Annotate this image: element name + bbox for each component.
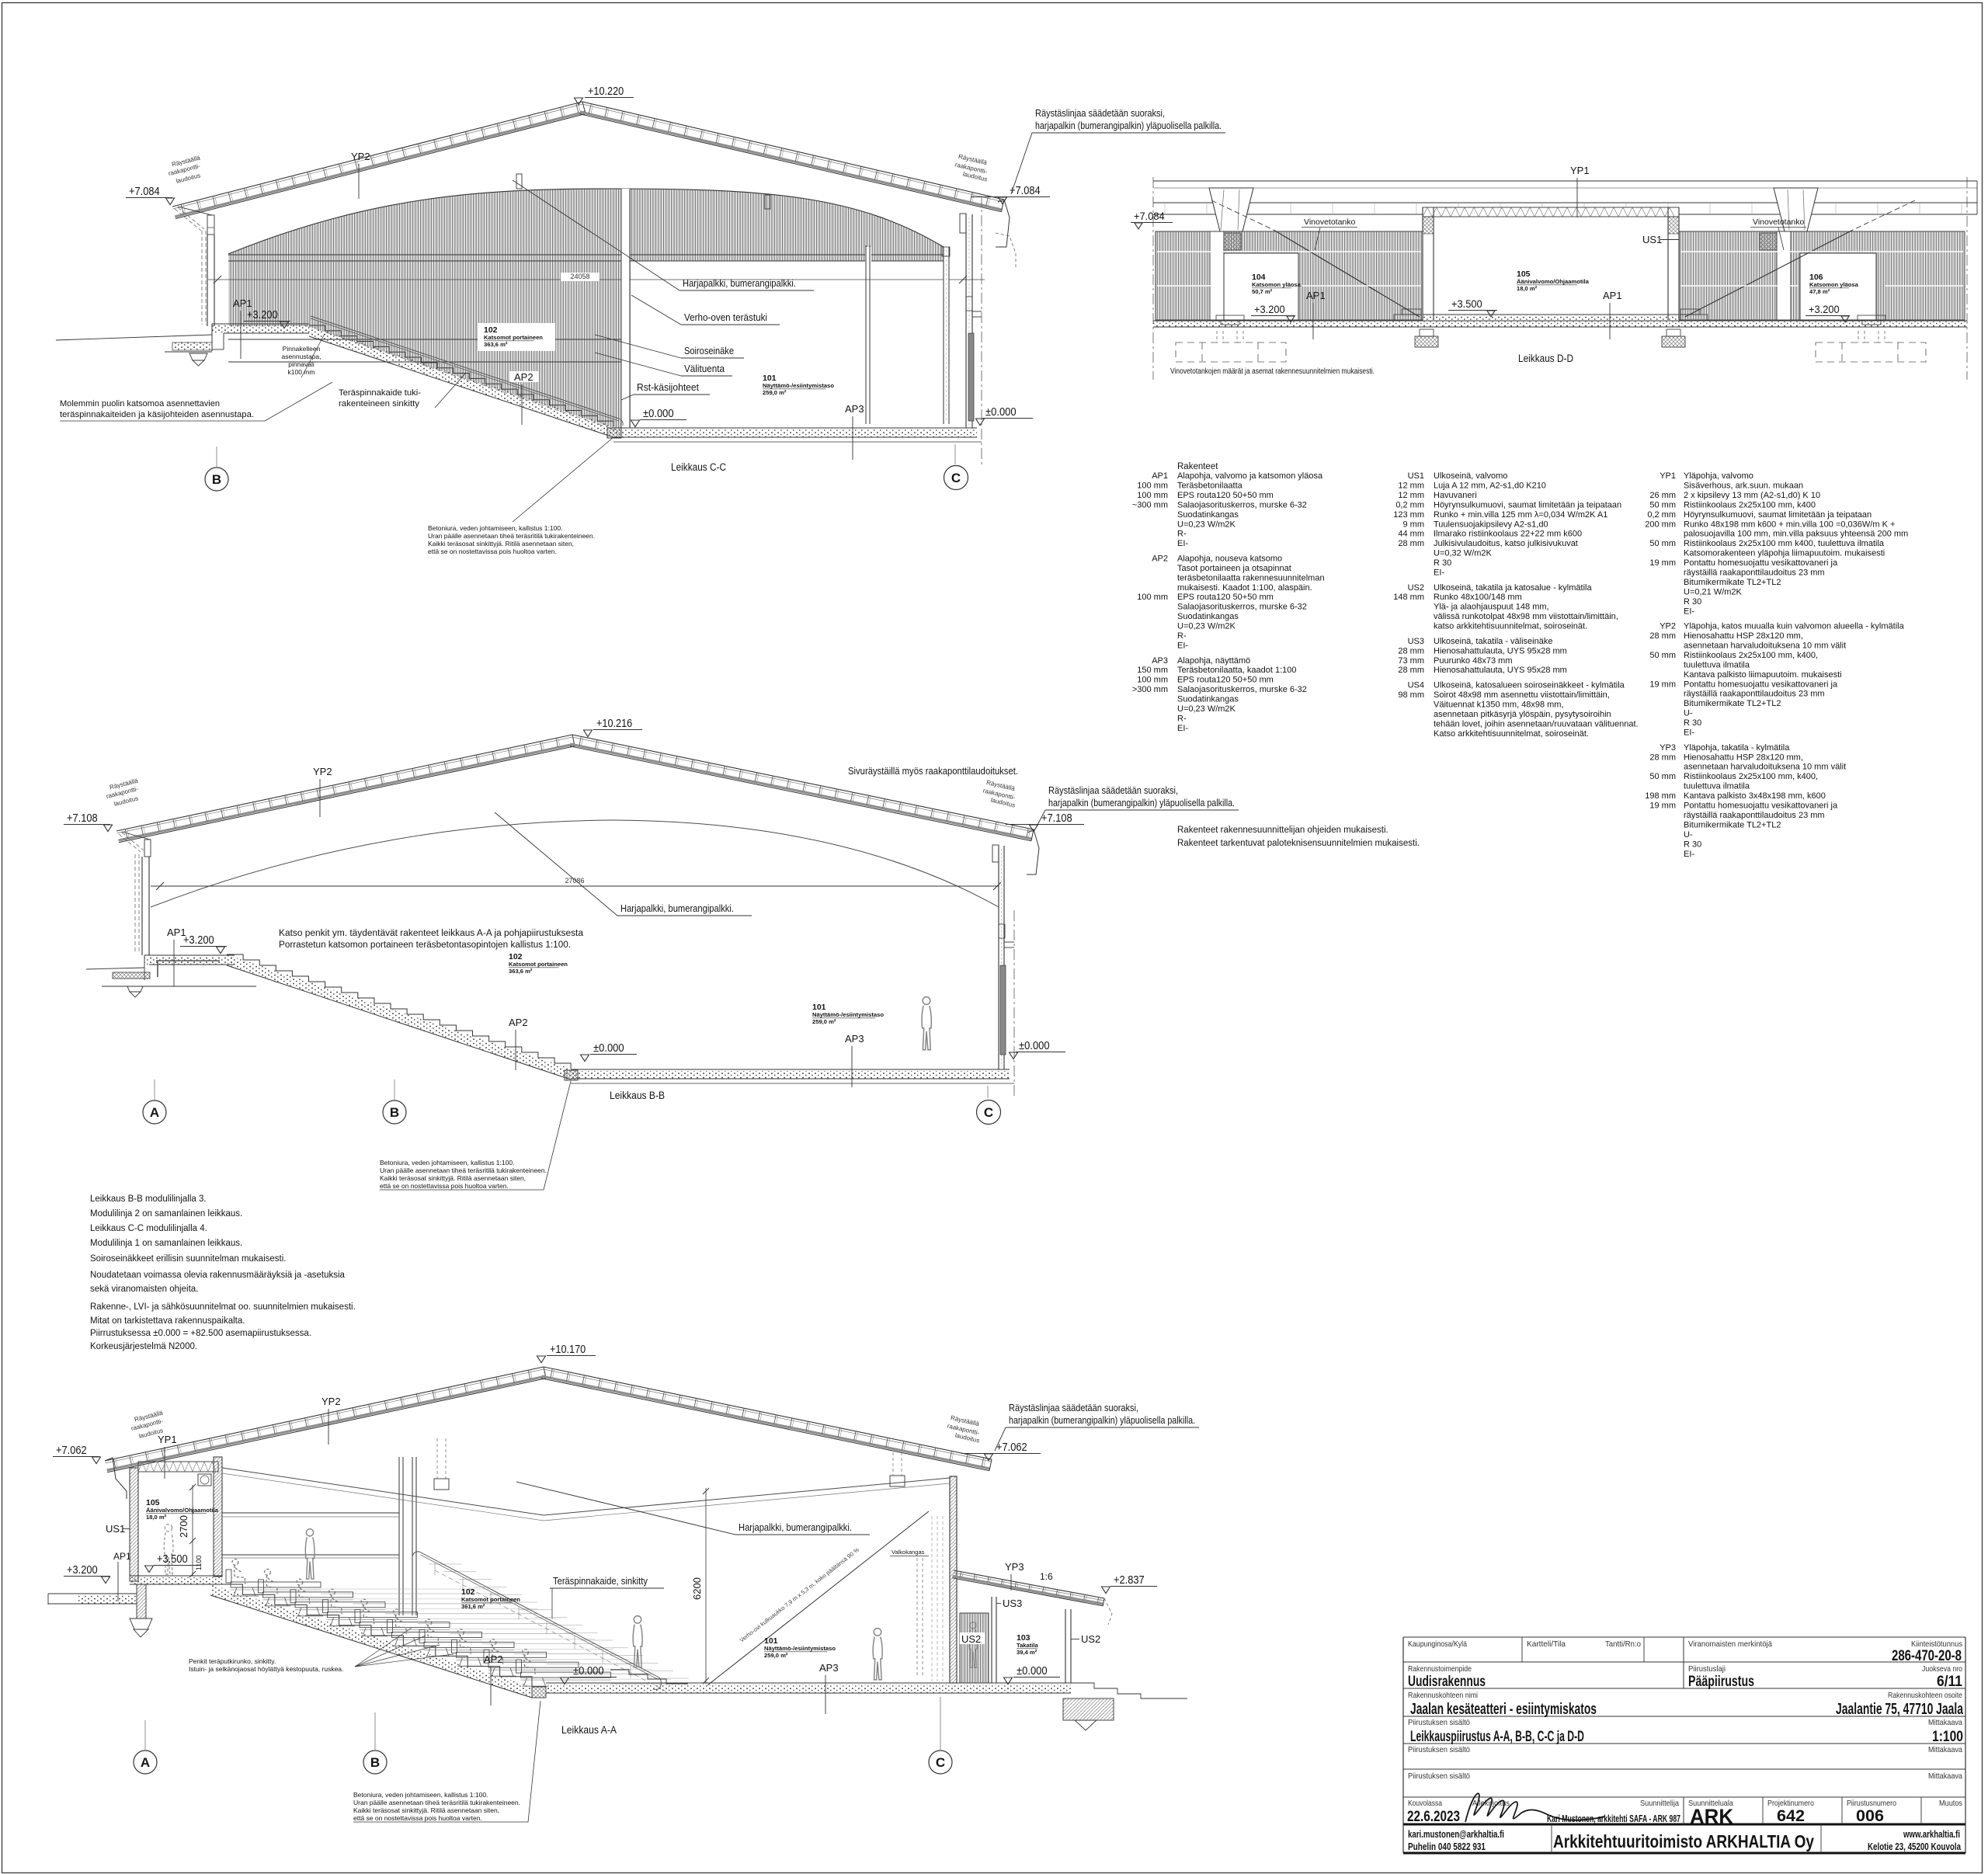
svg-text:Valkokangas: Valkokangas [891,1549,925,1556]
svg-text:Kantava palkisto liimapuutoim.: Kantava palkisto liimapuutoim. mukaisest… [1684,670,1842,680]
svg-text:0,2 mm: 0,2 mm [1647,510,1676,520]
svg-text:Höyrynsulkumuovi, saumat limit: Höyrynsulkumuovi, saumat limitetään ja t… [1434,500,1621,509]
svg-text:±0.000: ±0.000 [1019,1040,1050,1052]
svg-text:EPS routa120 50+50 mm: EPS routa120 50+50 mm [1177,593,1274,602]
svg-text:+3.200: +3.200 [1809,304,1840,315]
svg-text:US1: US1 [1408,471,1424,481]
svg-text:pinnaväli: pinnaväli [288,360,315,368]
svg-text:100 mm: 100 mm [1137,593,1168,602]
svg-text:että se on nostettavissa pois: että se on nostettavissa pois huoltoa va… [380,1182,509,1190]
svg-text:Räystäslinjaa säädetään suorak: Räystäslinjaa säädetään suoraksi, [1009,1402,1138,1413]
svg-text:AP3: AP3 [845,1033,864,1045]
svg-text:Katso arkkitehtisuunnitelmat,: Katso arkkitehtisuunnitelmat, soiroseinä… [1434,729,1589,739]
svg-text:U-: U- [1684,709,1693,718]
svg-text:Pontattu homesuojattu vesikatt: Pontattu homesuojattu vesikattovaneri ja [1684,558,1838,568]
svg-text:US2: US2 [1081,1633,1100,1645]
svg-text:EI-: EI- [1177,724,1188,733]
svg-text:12 mm: 12 mm [1398,491,1424,500]
svg-text:Runko 48x198 mm k600 + min.vil: Runko 48x198 mm k600 + min.villa 100 =0,… [1684,520,1895,529]
svg-text:U=0,23 W/m2K: U=0,23 W/m2K [1177,704,1236,714]
svg-text:U=0,21 W/m2K: U=0,21 W/m2K [1684,587,1743,596]
svg-text:Bitumikermikate TL2+TL2: Bitumikermikate TL2+TL2 [1684,578,1781,587]
svg-text:Vinovetotanko: Vinovetotanko [1753,217,1805,227]
svg-text:EI-: EI- [1434,568,1444,578]
svg-text:0,2 mm: 0,2 mm [1395,500,1424,509]
svg-text:50 mm: 50 mm [1649,772,1676,781]
svg-text:Teräspinnakaide tuki-: Teräspinnakaide tuki- [339,388,421,398]
svg-text:Kaikki teräsosat sinkittyjä. R: Kaikki teräsosat sinkittyjä. Ritilä asen… [380,1174,526,1182]
svg-text:että se on nostettavissa pois: että se on nostettavissa pois huoltoa va… [428,548,557,555]
svg-text:19 mm: 19 mm [1649,558,1676,568]
svg-text:Leikkaus C-C modulilinjalla 4.: Leikkaus C-C modulilinjalla 4. [90,1224,207,1233]
svg-text:Katso penkit ym. täydentävät r: Katso penkit ym. täydentävät rakenteet l… [279,929,584,938]
svg-text:+7.108: +7.108 [67,812,98,825]
svg-text:6200: 6200 [691,1577,703,1600]
svg-text:Suodatinkangas: Suodatinkangas [1177,695,1239,704]
svg-text:YP1: YP1 [1660,471,1676,481]
svg-text:Rakenne-, LVI- ja sähkösuunnit: Rakenne-, LVI- ja sähkösuunnitelmat oo. … [90,1302,356,1312]
svg-text:Sisäverhous, ark.suun. mukaan: Sisäverhous, ark.suun. mukaan [1684,482,1803,491]
svg-text:+7.062: +7.062 [996,1441,1027,1454]
svg-text:Piirustuksen sisältö: Piirustuksen sisältö [1408,1745,1470,1754]
svg-text:Runko 48x100/148 mm: Runko 48x100/148 mm [1434,593,1522,602]
svg-text:259,0 m²: 259,0 m² [764,1652,788,1659]
svg-text:tuulettuva ilmatila: tuulettuva ilmatila [1684,660,1750,669]
svg-text:harjapalkin (bumerangipalkin): harjapalkin (bumerangipalkin) yläpuolise… [1048,797,1235,808]
svg-text:73 mm: 73 mm [1398,656,1424,666]
svg-text:räystäillä raakaponttilaudoitu: räystäillä raakaponttilaudoitus 23 mm [1684,690,1825,699]
svg-text:Ylä- ja alaohjauspuut 148 mm,: Ylä- ja alaohjauspuut 148 mm, [1434,603,1549,612]
svg-text:Juokseva nro: Juokseva nro [1922,1664,1962,1674]
svg-text:+7.062: +7.062 [56,1445,87,1457]
svg-text:Muutos: Muutos [1939,1799,1962,1808]
svg-text:28 mm: 28 mm [1398,539,1424,548]
svg-text:AP1: AP1 [1152,471,1168,481]
svg-text:Ulkoseinä, valvomo: Ulkoseinä, valvomo [1434,471,1507,481]
svg-text:Penkit teräputkirunko, sinkitt: Penkit teräputkirunko, sinkitty. [189,1657,276,1665]
svg-text:Teräsbetonilaatta, kaadot 1:10: Teräsbetonilaatta, kaadot 1:100 [1177,666,1297,675]
svg-text:B: B [370,1755,380,1770]
svg-text:U=0,23 W/m2K: U=0,23 W/m2K [1177,622,1236,631]
svg-text:~300 mm: ~300 mm [1132,500,1168,509]
svg-text:YP2: YP2 [321,1396,341,1407]
svg-text:47,8 m²: 47,8 m² [1809,288,1830,295]
svg-text:US1: US1 [1642,234,1662,245]
svg-text:Julkisivulaudoitus, katso julk: Julkisivulaudoitus, katso julkisivukuvat [1434,539,1578,548]
svg-text:±0.000: ±0.000 [573,1665,604,1678]
svg-text:28 mm: 28 mm [1649,753,1676,762]
svg-text:Rakenteet rakennesuunnittelija: Rakenteet rakennesuunnittelijan ohjeiden… [1177,826,1388,835]
svg-text:98 mm: 98 mm [1398,690,1424,700]
svg-text:AP2: AP2 [484,1653,503,1665]
svg-text:361,6 m²: 361,6 m² [461,1603,485,1610]
svg-text:kari.mustonen@arkhaltia.fi: kari.mustonen@arkhaltia.fi [1408,1828,1504,1840]
svg-text:286-470-20-8: 286-470-20-8 [1892,1648,1962,1664]
svg-text:Näyttämö-/esiintymistaso: Näyttämö-/esiintymistaso [764,1645,836,1652]
svg-text:tehään lovet, joihin asennetaa: tehään lovet, joihin asennetaan/ruuvataa… [1434,719,1639,728]
svg-text:B: B [212,472,221,487]
svg-text:asennetaan pitkäsyrjä ylöspäin: asennetaan pitkäsyrjä ylöspäin, pysytyso… [1434,710,1611,719]
svg-text:Teräspinnakaide, sinkitty: Teräspinnakaide, sinkitty [553,1575,648,1587]
svg-text:Rakenteet tarkentuvat palotekn: Rakenteet tarkentuvat paloteknisensuunni… [1177,839,1420,848]
svg-text:EI-: EI- [1177,539,1188,548]
svg-text:+3.500: +3.500 [157,1553,188,1566]
svg-text:28 mm: 28 mm [1398,646,1424,655]
svg-text:A: A [150,1105,159,1120]
svg-text:9 mm: 9 mm [1403,520,1425,529]
svg-text:24058: 24058 [570,273,589,280]
svg-text:EPS routa120 50+50 mm: EPS routa120 50+50 mm [1177,676,1274,685]
svg-text:27086: 27086 [565,877,584,885]
svg-text:Rakenteet: Rakenteet [1177,462,1218,471]
svg-text:Kaikki teräsosat sinkittyjä. R: Kaikki teräsosat sinkittyjä. Ritilä asen… [353,1806,499,1814]
svg-text:Rakennuskohteen nimi: Rakennuskohteen nimi [1408,1691,1478,1700]
svg-text:Ristiinkoolaus 2x25x100 mm k40: Ristiinkoolaus 2x25x100 mm k400, tuulett… [1684,539,1885,548]
svg-text:A: A [141,1755,150,1770]
svg-text:±0.000: ±0.000 [593,1042,624,1055]
svg-text:Yläpohja, takatila - kylmätila: Yläpohja, takatila - kylmätila [1684,743,1790,753]
svg-text:Betoniura, veden johtamiseen,: Betoniura, veden johtamiseen, kallistus … [353,1791,488,1799]
svg-text:642: 642 [1777,1807,1805,1825]
svg-text:Vinovetotanko: Vinovetotanko [1304,217,1356,227]
svg-text:Havuvaneri: Havuvaneri [1434,491,1477,500]
svg-text:palosuojavilla 100 mm, min.vil: palosuojavilla 100 mm, min.villa paksuus… [1684,530,1908,539]
svg-text:R 30: R 30 [1684,597,1701,607]
svg-text:räystäillä raakaponttilaudoitu: räystäillä raakaponttilaudoitus 23 mm [1684,811,1825,820]
svg-text:Mitat on tarkistettava rakennu: Mitat on tarkistettava rakennuspaikalta. [90,1316,245,1326]
svg-text:Betoniura, veden johtamiseen,: Betoniura, veden johtamiseen, kallistus … [428,524,562,532]
svg-text:Kelotie 23, 45200 Kouvola: Kelotie 23, 45200 Kouvola [1868,1841,1962,1852]
svg-text:+10.220: +10.220 [588,85,624,98]
svg-text:Räystäslinjaa säädetään suorak: Räystäslinjaa säädetään suoraksi, [1048,784,1178,796]
svg-text:Takatila: Takatila [1017,1642,1038,1649]
svg-text:harjapalkin (bumerangipalkin): harjapalkin (bumerangipalkin) yläpuolise… [1035,120,1222,131]
svg-text:asennetaan harvaludoituksena 1: asennetaan harvaludoituksena 10 mm välit [1684,763,1846,772]
svg-text:Sivuräystäillä myös raakapontt: Sivuräystäillä myös raakaponttilaudoituk… [848,765,1018,777]
svg-text:Kouvolassa: Kouvolassa [1408,1799,1442,1808]
svg-text:Piirustuslaji: Piirustuslaji [1688,1664,1726,1674]
svg-text:R 30: R 30 [1684,718,1701,728]
svg-text:Suodatinkangas: Suodatinkangas [1177,612,1239,621]
svg-text:+10.170: +10.170 [550,1344,586,1356]
svg-text:Kaikki teräsosat sinkittyjä. R: Kaikki teräsosat sinkittyjä. Ritilä asen… [428,540,574,548]
svg-text:Harjapalkki, bumerangipalkki.: Harjapalkki, bumerangipalkki. [739,1521,852,1533]
svg-text:Korkeusjärjestelmä N2000.: Korkeusjärjestelmä N2000. [90,1342,197,1351]
svg-text:Uran päälle asennetaan tiheä t: Uran päälle asennetaan tiheä teräsritilä… [380,1166,547,1174]
svg-text:Salaojasorituskerros, murske 6: Salaojasorituskerros, murske 6-32 [1177,500,1307,509]
svg-text:AP1: AP1 [1306,290,1326,301]
svg-text:50,7 m²: 50,7 m² [1252,288,1273,295]
svg-text:Betoniura, veden johtamiseen,: Betoniura, veden johtamiseen, kallistus … [380,1159,514,1166]
svg-text:259,0 m²: 259,0 m² [812,1018,836,1025]
svg-text:Äänivalvomo/Ohjaamotila: Äänivalvomo/Ohjaamotila [146,1507,219,1514]
svg-text:+7.108: +7.108 [1041,812,1072,825]
svg-text:Katsomot portaineen: Katsomot portaineen [461,1596,520,1603]
svg-text:asennustapa,: asennustapa, [281,353,321,360]
svg-text:sekä viranomaisten ohjeita.: sekä viranomaisten ohjeita. [90,1285,198,1294]
svg-text:1100: 1100 [195,1556,203,1570]
svg-text:YP1: YP1 [1570,165,1590,176]
svg-text:Leikkaus B-B modulilinjalla 3.: Leikkaus B-B modulilinjalla 3. [90,1194,207,1204]
svg-text:harjapalkin (bumerangipalkin): harjapalkin (bumerangipalkin) yläpuolise… [1009,1414,1195,1426]
svg-text:±0.000: ±0.000 [985,406,1017,419]
svg-text:363,6 m²: 363,6 m² [484,341,508,348]
svg-text:Hienosahattulauta, UYS 95x28 m: Hienosahattulauta, UYS 95x28 mm [1434,646,1567,655]
svg-text:AP1: AP1 [233,297,252,309]
svg-text:+10.216: +10.216 [596,718,632,730]
svg-text:Höyrynsulkumuovi, saumat limit: Höyrynsulkumuovi, saumat limitetään ja t… [1684,510,1872,520]
svg-text:Tasot portaineen ja otsapinnat: Tasot portaineen ja otsapinnat [1177,564,1291,573]
svg-text:EPS routa120 50+50 mm: EPS routa120 50+50 mm [1177,491,1274,500]
svg-text:www.arkhaltia.fi: www.arkhaltia.fi [1903,1828,1960,1840]
svg-text:AP3: AP3 [819,1662,839,1674]
svg-text:+3.200: +3.200 [247,309,278,322]
svg-text:28 mm: 28 mm [1398,666,1424,675]
svg-text:100 mm: 100 mm [1137,676,1168,685]
svg-text:Porrastetun katsomon portainee: Porrastetun katsomon portaineen teräsbet… [279,940,571,950]
svg-text:k100 mm: k100 mm [288,368,315,376]
svg-text:2 x kipsilevy 13 mm (A2-s1,d0): 2 x kipsilevy 13 mm (A2-s1,d0) K 10 [1684,491,1820,500]
svg-text:Rst-käsijohteet: Rst-käsijohteet [637,381,699,393]
svg-text:Pontattu homesuojattu vesikatt: Pontattu homesuojattu vesikattovaneri ja [1684,801,1838,811]
svg-text:Katsomot portaineen: Katsomot portaineen [509,961,568,968]
svg-text:50 mm: 50 mm [1649,651,1676,660]
svg-text:US2: US2 [961,1633,981,1645]
svg-text:Hienosahattu HSP 28x120 mm,: Hienosahattu HSP 28x120 mm, [1684,631,1803,641]
svg-text:Modulilinja 2 on samanlainen l: Modulilinja 2 on samanlainen leikkaus. [90,1209,242,1219]
svg-text:R-: R- [1177,714,1187,724]
svg-text:Välituenta: Välituenta [684,363,725,374]
svg-text:Väituennat k1350 mm, 48x98 mm,: Väituennat k1350 mm, 48x98 mm, [1434,700,1564,709]
svg-text:+3.500: +3.500 [1451,298,1482,310]
svg-text:AP2: AP2 [509,1017,528,1028]
svg-text:Teräsbetonilaatta: Teräsbetonilaatta [1177,482,1243,491]
svg-text:Uran päälle asennetaan tiheä t: Uran päälle asennetaan tiheä teräsritilä… [353,1799,520,1806]
svg-text:2700: 2700 [178,1515,189,1538]
svg-text:Salaojasorituskerros, murske 6: Salaojasorituskerros, murske 6-32 [1177,603,1307,612]
svg-text:±0.000: ±0.000 [1017,1665,1048,1678]
svg-text:200 mm: 200 mm [1645,520,1676,529]
svg-text:C: C [936,1755,945,1770]
svg-text:Jaalan kesäteatteri - esiintym: Jaalan kesäteatteri - esiintymiskatos [1410,1701,1597,1718]
svg-text:Ristiinkoolaus 2x25x100 mm, k4: Ristiinkoolaus 2x25x100 mm, k400, [1684,651,1818,660]
svg-text:Leikkaus C-C: Leikkaus C-C [671,461,726,473]
svg-text:Verho-oven terästuki: Verho-oven terästuki [684,311,767,323]
svg-text:Alapohja, nouseva katsomo: Alapohja, nouseva katsomo [1177,554,1282,563]
svg-text:YP1: YP1 [158,1434,177,1445]
svg-text:U=0,23 W/m2K: U=0,23 W/m2K [1177,520,1236,529]
svg-text:50 mm: 50 mm [1649,539,1676,548]
svg-text:±0.000: ±0.000 [643,408,674,420]
svg-text:EI-: EI- [1177,641,1188,651]
svg-text:Mittakaava: Mittakaava [1928,1718,1962,1727]
svg-text:Viranomaisten merkintöjä: Viranomaisten merkintöjä [1688,1639,1772,1649]
svg-text:Mittakaava: Mittakaava [1928,1745,1962,1754]
svg-text:Leikkauspiirustus A-A, B-B, C-: Leikkauspiirustus A-A, B-B, C-C ja D-D [1410,1729,1584,1745]
svg-text:Suodatinkangas: Suodatinkangas [1177,510,1239,520]
svg-text:US3: US3 [1003,1598,1022,1609]
svg-text:50 mm: 50 mm [1649,500,1676,509]
svg-text:Katsomon yläosa: Katsomon yläosa [1809,281,1859,288]
svg-text:Rakennustoimenpide: Rakennustoimenpide [1408,1664,1472,1674]
svg-text:Yläpohja, valvomo: Yläpohja, valvomo [1684,471,1753,481]
svg-text:Yläpohja, katos muualla kuin v: Yläpohja, katos muualla kuin valvomon al… [1684,622,1905,631]
svg-text:Räystäslinjaa säädetään suorak: Räystäslinjaa säädetään suoraksi, [1035,107,1165,119]
svg-text:räystäillä raakaponttilaudoitu: räystäillä raakaponttilaudoitus 23 mm [1684,568,1825,578]
svg-text:19 mm: 19 mm [1649,680,1676,689]
svg-text:EI-: EI- [1684,850,1694,859]
svg-text:44 mm: 44 mm [1398,530,1424,539]
svg-text:Tantti/Rn:o: Tantti/Rn:o [1605,1639,1641,1649]
svg-text:YP2: YP2 [313,766,332,777]
svg-text:välissä runkotolpat 48x98 mm v: välissä runkotolpat 48x98 mm viistottain… [1434,612,1618,621]
svg-text:Mittakaava: Mittakaava [1928,1771,1962,1781]
svg-text:Arkkitehtuuritoimisto ARKHALTI: Arkkitehtuuritoimisto ARKHALTIA Oy [1553,1831,1814,1851]
svg-text:Harjapalkki, bumerangipalkki.: Harjapalkki, bumerangipalkki. [620,902,734,914]
svg-text:Rakennuskohteen osoite: Rakennuskohteen osoite [1888,1691,1962,1700]
svg-text:Piirustuksen sisältö: Piirustuksen sisältö [1408,1718,1470,1727]
svg-text:Luja A 12 mm, A2-s1,d0 K210: Luja A 12 mm, A2-s1,d0 K210 [1434,482,1546,491]
svg-text:Ulkoseinä, takatila - välisein: Ulkoseinä, takatila - väliseinäke [1434,637,1552,646]
svg-text:1:100: 1:100 [1932,1729,1963,1745]
svg-text:Tuulensuojakipsilevy A2-s1,d0: Tuulensuojakipsilevy A2-s1,d0 [1434,520,1548,529]
svg-text:Modulilinja 1 on samanlainen l: Modulilinja 1 on samanlainen leikkaus. [90,1239,242,1248]
svg-text:363,6 m²: 363,6 m² [509,968,533,975]
svg-text:Kartteli/Tila: Kartteli/Tila [1527,1639,1566,1649]
svg-text:YP3: YP3 [1005,1561,1024,1573]
svg-text:Hienosahattulauta, UYS 95x28 m: Hienosahattulauta, UYS 95x28 mm [1434,666,1567,675]
svg-text:US3: US3 [1408,637,1424,646]
svg-text:U-: U- [1684,830,1693,840]
svg-text:teräsbetonilaatta rakennesuunn: teräsbetonilaatta rakennesuunnitelman [1177,573,1325,582]
svg-text:Noudatetaan voimassa olevia ra: Noudatetaan voimassa olevia rakennusmäär… [90,1271,346,1280]
svg-text:US4: US4 [1408,681,1424,690]
svg-text:AP3: AP3 [845,403,864,415]
svg-text:Harjapalkki, bumerangipalkki.: Harjapalkki, bumerangipalkki. [683,277,796,289]
svg-text:100 mm: 100 mm [1137,491,1168,500]
svg-text:+7.084: +7.084 [1010,185,1041,197]
svg-text:+3.200: +3.200 [67,1564,98,1577]
svg-text:Pinnakelleen: Pinnakelleen [283,345,321,353]
svg-text:+3.200: +3.200 [183,934,214,947]
svg-text:Ristiinkoolaus 2x25x100 mm, k4: Ristiinkoolaus 2x25x100 mm, k400, [1684,772,1818,781]
svg-text:26 mm: 26 mm [1649,491,1676,500]
svg-text:teräspinnakaiteiden ja käsijoh: teräspinnakaiteiden ja käsijohteiden ase… [60,410,254,419]
svg-text:US2: US2 [1408,583,1424,593]
svg-text:Alapohja, valvomo ja katsomon: Alapohja, valvomo ja katsomon yläosa [1177,471,1323,481]
svg-text:Uran päälle asennetaan tiheä t: Uran päälle asennetaan tiheä teräsritilä… [428,532,595,540]
svg-text:Suunnittelija: Suunnittelija [1640,1799,1679,1808]
svg-text:katso arkkitehtisuunnitelmat,: katso arkkitehtisuunnitelmat, soiroseinä… [1434,622,1587,631]
svg-text:198 mm: 198 mm [1645,791,1676,801]
svg-text:12 mm: 12 mm [1398,482,1424,491]
svg-text:Salaojasorituskerros, murske 6: Salaojasorituskerros, murske 6-32 [1177,685,1307,694]
svg-text:YP2: YP2 [1660,622,1676,631]
svg-text:U=0,32 W/m2K: U=0,32 W/m2K [1434,549,1493,558]
svg-text:Uudisrakennus: Uudisrakennus [1408,1674,1486,1690]
svg-text:YP2: YP2 [351,151,370,162]
svg-text:C: C [951,471,961,485]
svg-text:Leikkaus B-B: Leikkaus B-B [610,1090,665,1101]
svg-text:22.6.2023: 22.6.2023 [1407,1809,1460,1825]
svg-text:Bitumikermikate TL2+TL2: Bitumikermikate TL2+TL2 [1684,699,1781,708]
svg-text:Piirrustuksessa ±0.000 = +82.5: Piirrustuksessa ±0.000 = +82.500 asemapi… [90,1329,311,1338]
svg-text:C: C [984,1105,993,1120]
svg-text:Näyttämö-/esiintymistaso: Näyttämö-/esiintymistaso [812,1011,884,1018]
svg-text:100 mm: 100 mm [1137,482,1168,491]
svg-text:YP3: YP3 [1660,743,1676,753]
svg-text:+3.200: +3.200 [1254,304,1285,315]
svg-text:Puhelin 040 5822 931: Puhelin 040 5822 931 [1408,1841,1486,1852]
svg-text:Piirustuksen sisältö: Piirustuksen sisältö [1408,1771,1470,1781]
svg-text:R 30: R 30 [1684,840,1701,849]
svg-text:R-: R- [1177,530,1187,539]
svg-text:Leikkaus A-A: Leikkaus A-A [561,1724,617,1736]
svg-text:Äänivalvomo/Ohjaamotila: Äänivalvomo/Ohjaamotila [1517,278,1590,285]
svg-text:rakenteineen sinkitty: rakenteineen sinkitty [339,399,420,409]
svg-text:Pääpiirustus: Pääpiirustus [1688,1674,1754,1690]
svg-text:19 mm: 19 mm [1649,801,1676,811]
svg-text:148 mm: 148 mm [1393,593,1424,602]
svg-text:Istuin- ja selkänojaosat höylä: Istuin- ja selkänojaosat höylättyä kesto… [189,1665,343,1673]
svg-text:ARK: ARK [1690,1805,1733,1828]
svg-text:B: B [390,1105,399,1120]
svg-text:Ristiinkoolaus 2x25x100 mm, k4: Ristiinkoolaus 2x25x100 mm, k400 [1684,500,1816,509]
svg-text:AP1: AP1 [113,1551,131,1562]
svg-text:Näyttämö-/esiintymistaso: Näyttämö-/esiintymistaso [763,382,834,389]
svg-text:28 mm: 28 mm [1649,631,1676,641]
svg-text:AP2: AP2 [514,371,533,383]
svg-text:39,4 m²: 39,4 m² [1017,1649,1037,1656]
svg-text:+7.084: +7.084 [1134,210,1165,222]
svg-text:EI-: EI- [1684,607,1694,616]
svg-text:Molemmin puolin katsomoa asenn: Molemmin puolin katsomoa asennettavien [60,399,220,409]
svg-text:AP2: AP2 [1152,554,1168,563]
svg-text:Ulkoseinä, takatila ja katosal: Ulkoseinä, takatila ja katosalue - kylmä… [1434,583,1592,593]
svg-text:R-: R- [1177,631,1187,641]
svg-text:18,0 m²: 18,0 m² [1517,285,1538,292]
svg-text:Bitumikermikate TL2+TL2: Bitumikermikate TL2+TL2 [1684,820,1781,829]
svg-text:Soirot 48x98 mm asennettu viis: Soirot 48x98 mm asennettu viistottain/li… [1434,690,1610,700]
svg-text:>300 mm: >300 mm [1132,685,1168,694]
svg-text:+2.837: +2.837 [1114,1574,1145,1587]
svg-text:Leikkaus D-D: Leikkaus D-D [1518,353,1573,364]
svg-text:AP1: AP1 [1603,290,1622,301]
svg-text:+7.084: +7.084 [129,186,160,198]
svg-text:150 mm: 150 mm [1137,666,1168,675]
svg-text:006: 006 [1856,1807,1884,1825]
svg-text:259,0 m²: 259,0 m² [763,389,787,396]
svg-text:Kaupunginosa/Kylä: Kaupunginosa/Kylä [1408,1639,1467,1649]
svg-text:Katsomorakenteen yläpohja liim: Katsomorakenteen yläpohja liimapuutoim. … [1684,549,1885,558]
svg-text:Soiroseinäke: Soiroseinäke [684,345,734,356]
svg-text:että se on nostettavissa pois: että se on nostettavissa pois huoltoa va… [353,1814,482,1822]
svg-text:Katsomot portaineen: Katsomot portaineen [484,334,543,341]
svg-text:R 30: R 30 [1434,558,1451,568]
svg-text:AP3: AP3 [1152,656,1168,666]
svg-text:asennetaan harvaludoituksena 1: asennetaan harvaludoituksena 10 mm välit [1684,641,1846,651]
svg-text:Ulkoseinä, katosalueen soirose: Ulkoseinä, katosalueen soiroseinäkkeet -… [1434,681,1625,690]
svg-text:Pontattu homesuojattu vesikatt: Pontattu homesuojattu vesikattovaneri ja [1684,680,1838,689]
svg-text:Vinovetotankojen määrät ja ase: Vinovetotankojen määrät ja asemat rakenn… [1170,367,1375,376]
svg-text:Hienosahattu HSP 28x120 mm,: Hienosahattu HSP 28x120 mm, [1684,753,1803,762]
svg-text:mukaisesti. Kaadot 1:100, alas: mukaisesti. Kaadot 1:100, alaspäin. [1177,583,1312,593]
svg-text:Jaalantie 75, 47710 Jaala: Jaalantie 75, 47710 Jaala [1836,1701,1964,1718]
svg-text:US1: US1 [106,1523,125,1535]
svg-text:Soiroseinäkkeet erillisin suun: Soiroseinäkkeet erillisin suunnitelman m… [90,1254,286,1264]
svg-text:Puurunko 48x73 mm: Puurunko 48x73 mm [1434,656,1513,666]
svg-text:123 mm: 123 mm [1393,510,1424,520]
